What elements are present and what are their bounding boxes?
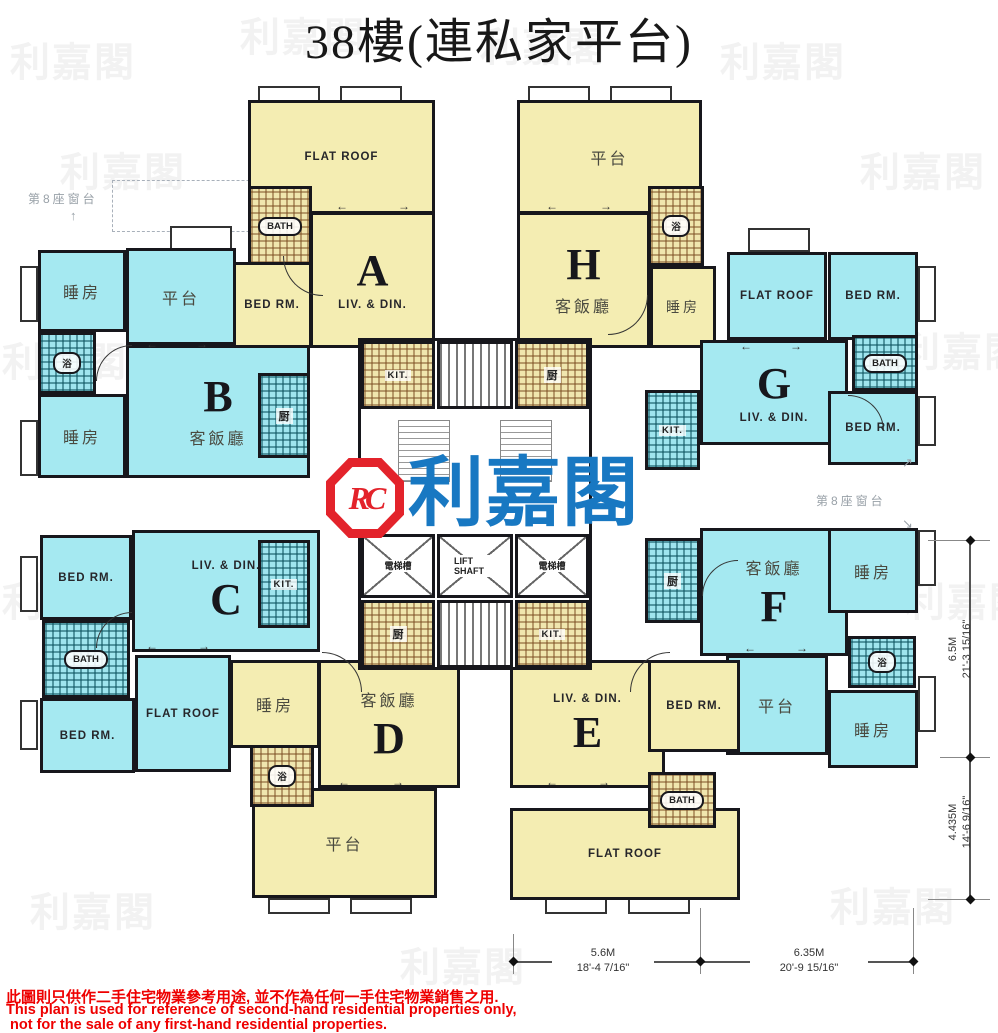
unit-f-kitchen: 厨 <box>645 538 700 623</box>
logo-inner: RC <box>335 467 395 529</box>
dimension-tick <box>509 957 519 967</box>
door-arc <box>630 652 670 692</box>
unit-f-bedroom-top: 睡房 <box>828 528 918 613</box>
arrow-right-icon: → <box>790 340 802 352</box>
unit-f-terrace: 平台 <box>726 655 828 755</box>
disclaimer-en-line1: This plan is used for reference of secon… <box>6 1002 517 1018</box>
room-label: 客飯廳 <box>360 687 417 711</box>
room-label: 平台 <box>758 693 796 717</box>
arrow-left-icon: ← <box>336 200 348 212</box>
room-label: 睡房 <box>666 297 700 317</box>
dimension-tick <box>909 957 919 967</box>
lift-label: 電梯槽 <box>382 560 413 572</box>
room-label: FLAT ROOF <box>146 708 220 720</box>
unit-b-terrace: 平台 <box>126 248 236 345</box>
lift-label: LIFT SHAFT <box>452 555 498 578</box>
arrow-left-icon: ← <box>740 340 752 352</box>
slide-door-arrows: ← → <box>546 200 612 212</box>
unit-c-bedroom-top: BED RM. <box>40 535 132 620</box>
unit-c-bedroom-bottom: BED RM. <box>40 698 135 773</box>
page-title: 38樓(連私家平台) <box>0 2 998 72</box>
extension-line <box>513 934 514 974</box>
unit-d-bedroom: 睡房 <box>230 660 320 748</box>
kitchen-unit-e: KIT. <box>515 600 589 668</box>
arrow-left-icon: ← <box>546 776 558 788</box>
rc-monogram: RC <box>349 480 382 517</box>
kitchen-label: KIT. <box>385 370 412 381</box>
unit-h-bath: 浴 <box>648 186 704 266</box>
bay-window <box>918 676 936 732</box>
extension-line <box>928 540 990 541</box>
unit-d-bath: 浴 <box>250 745 314 807</box>
room-label: LIV. & DIN. <box>740 412 809 424</box>
lift-left: 電梯槽 <box>361 534 435 598</box>
kitchen-unit-d: 厨 <box>361 600 435 668</box>
lift-right: 電梯槽 <box>515 534 589 598</box>
bay-window <box>350 898 412 914</box>
arrow-right-icon: → <box>598 776 610 788</box>
bay-window-note-left: 第8座窗台 <box>28 190 98 207</box>
room-label: BED RM. <box>244 299 300 311</box>
bay-window <box>20 556 38 612</box>
watermark: 利嘉閣 <box>30 880 156 938</box>
dimension-imperial: 21'-3 15/16" <box>960 620 974 679</box>
arrow-down-right-icon: ↘ <box>902 516 913 532</box>
floor-plan-canvas: 利嘉閣 利嘉閣 利嘉閣 利嘉閣 利嘉閣 利嘉閣 利嘉閣 利嘉閣 利嘉閣 利嘉閣 … <box>0 0 998 1033</box>
kitchen-label: 厨 <box>276 408 293 424</box>
lift-label: 電梯槽 <box>536 560 567 572</box>
kitchen-label: 厨 <box>390 626 407 642</box>
room-label: BED RM. <box>60 730 116 742</box>
unit-a-living: A LIV. & DIN. <box>310 212 435 348</box>
unit-b-bedroom-top: 睡房 <box>38 250 126 332</box>
unit-letter: E <box>573 711 602 755</box>
ricacorp-logo-text: 利嘉閣 <box>408 452 648 536</box>
kitchen-label: 厨 <box>544 367 561 383</box>
unit-f-bedroom-bottom: 睡房 <box>828 690 918 768</box>
unit-c-kitchen: KIT. <box>258 540 310 628</box>
unit-letter: C <box>210 578 242 622</box>
arrow-right-icon: → <box>796 642 808 654</box>
unit-f-bath: 浴 <box>848 636 916 688</box>
unit-b-bath: 浴 <box>38 332 96 394</box>
bathtub-label: BATH <box>258 217 302 236</box>
bay-window <box>748 228 810 252</box>
room-label: 睡房 <box>63 424 101 448</box>
bay-window <box>20 420 38 476</box>
arrow-up-right-icon: ↗ <box>902 455 913 471</box>
unit-a-bath: BATH <box>248 186 312 266</box>
room-label: 睡房 <box>63 279 101 303</box>
staircase-bottom <box>437 600 513 668</box>
room-label: BED RM. <box>666 700 722 712</box>
dimension-bottom-right: 6.35M 20'-9 15/16" <box>750 946 868 977</box>
unit-b-kitchen: 厨 <box>258 373 310 458</box>
kitchen-unit-h: 厨 <box>515 341 589 409</box>
disclaimer-en-line2: not for the sale of any first-hand resid… <box>10 1017 387 1033</box>
dimension-metric: 6.5M <box>946 637 960 661</box>
bathtub-label: 浴 <box>268 765 296 787</box>
watermark: 利嘉閣 <box>400 935 526 993</box>
dimension-tick <box>966 536 976 546</box>
room-label: BED RM. <box>58 572 114 584</box>
staircase-top <box>437 341 513 409</box>
slide-door-arrows: ← → <box>146 338 208 350</box>
bay-window <box>918 396 936 446</box>
arrow-up-icon: ↑ <box>70 208 77 223</box>
room-label: FLAT ROOF <box>588 848 662 860</box>
room-label: 客飯廳 <box>745 555 802 579</box>
unit-c-flat-roof: FLAT ROOF <box>135 655 231 772</box>
bay-window <box>918 266 936 322</box>
dimension-imperial: 14'-6 9/16" <box>960 796 974 849</box>
room-label: 睡房 <box>256 692 294 716</box>
unit-letter: D <box>373 717 405 761</box>
kitchen-unit-a: KIT. <box>361 341 435 409</box>
dimension-tick <box>696 957 706 967</box>
unit-g-bedroom-top: BED RM. <box>828 252 918 340</box>
watermark: 利嘉閣 <box>830 875 956 933</box>
bay-window <box>170 226 232 250</box>
door-arc <box>96 345 132 381</box>
watermark: 利嘉閣 <box>860 140 986 198</box>
kitchen-label: 厨 <box>664 573 681 589</box>
bathtub-label: BATH <box>64 650 108 669</box>
ricacorp-logo-mark: RC <box>326 458 404 538</box>
bay-window <box>20 266 38 322</box>
unit-letter: G <box>757 362 791 406</box>
room-label: 平台 <box>162 285 200 309</box>
slide-door-arrows: ← → <box>336 200 410 212</box>
room-label: BED RM. <box>845 290 901 302</box>
kitchen-label: KIT. <box>271 579 298 590</box>
room-label: 睡房 <box>854 559 892 583</box>
room-label: FLAT ROOF <box>740 290 814 302</box>
dimension-imperial: 20'-9 15/16" <box>753 961 865 976</box>
room-label: 平台 <box>590 145 628 169</box>
room-label: 客飯廳 <box>555 293 612 317</box>
unit-letter: A <box>357 249 389 293</box>
dimension-imperial: 18'-4 7/16" <box>555 961 651 976</box>
slide-door-arrows: ← → <box>744 642 808 654</box>
room-label: 平台 <box>325 831 363 855</box>
unit-h-bedroom: 睡房 <box>650 266 716 348</box>
unit-g-living: G LIV. & DIN. <box>700 340 848 445</box>
arrow-left-icon: ← <box>146 338 158 350</box>
room-label: FLAT ROOF <box>305 151 379 163</box>
door-arc <box>322 652 362 692</box>
kitchen-label: KIT. <box>659 425 686 436</box>
slide-door-arrows: ← → <box>338 776 404 788</box>
arrow-right-icon: → <box>392 776 404 788</box>
bay-window <box>268 898 330 914</box>
room-label: LIV. & DIN. <box>338 299 407 311</box>
unit-g-bath: BATH <box>852 335 918 391</box>
bathtub-label: 浴 <box>53 352 81 374</box>
arrow-left-icon: ← <box>338 776 350 788</box>
arrow-right-icon: → <box>600 200 612 212</box>
arrow-right-icon: → <box>198 640 210 652</box>
bay-window-note-right: 第8座窗台 <box>816 492 886 509</box>
bathtub-label: 浴 <box>868 651 896 673</box>
bathtub-label: BATH <box>660 791 704 810</box>
slide-door-arrows: ← → <box>546 776 610 788</box>
unit-letter: B <box>203 375 232 419</box>
unit-e-bath: BATH <box>648 772 716 828</box>
bay-window <box>918 530 936 586</box>
dimension-right-upper: 6.5M 21'-3 15/16" <box>945 569 975 729</box>
bay-window <box>20 700 38 750</box>
room-label: LIV. & DIN. <box>192 560 261 572</box>
arrow-right-icon: → <box>196 338 208 350</box>
arrow-left-icon: ← <box>744 642 756 654</box>
bathtub-label: 浴 <box>662 215 690 237</box>
arrow-left-icon: ← <box>546 200 558 212</box>
arrow-right-icon: → <box>398 200 410 212</box>
unit-g-kitchen: KIT. <box>645 390 700 470</box>
slide-door-arrows: ← → <box>740 340 802 352</box>
unit-letter: H <box>566 243 600 287</box>
bathtub-label: BATH <box>863 354 907 373</box>
dimension-bottom-left: 5.6M 18'-4 7/16" <box>552 946 654 977</box>
dimension-metric: 4.435M <box>946 804 960 841</box>
bay-window <box>545 898 607 914</box>
room-label: 睡房 <box>854 717 892 741</box>
arrow-left-icon: ← <box>146 640 158 652</box>
lift-shaft: LIFT SHAFT <box>437 534 513 598</box>
kitchen-label: KIT. <box>539 629 566 640</box>
unit-b-bedroom-bottom: 睡房 <box>38 394 126 478</box>
room-label: 客飯廳 <box>189 425 246 449</box>
dimension-right-lower: 4.435M 14'-6 9/16" <box>945 742 975 902</box>
dimension-metric: 5.6M <box>555 946 651 961</box>
room-label: LIV. & DIN. <box>553 693 622 705</box>
bay-window <box>628 898 690 914</box>
slide-door-arrows: ← → <box>146 640 210 652</box>
unit-g-flat-roof: FLAT ROOF <box>727 252 827 340</box>
unit-letter: F <box>761 585 788 629</box>
dimension-metric: 6.35M <box>753 946 865 961</box>
